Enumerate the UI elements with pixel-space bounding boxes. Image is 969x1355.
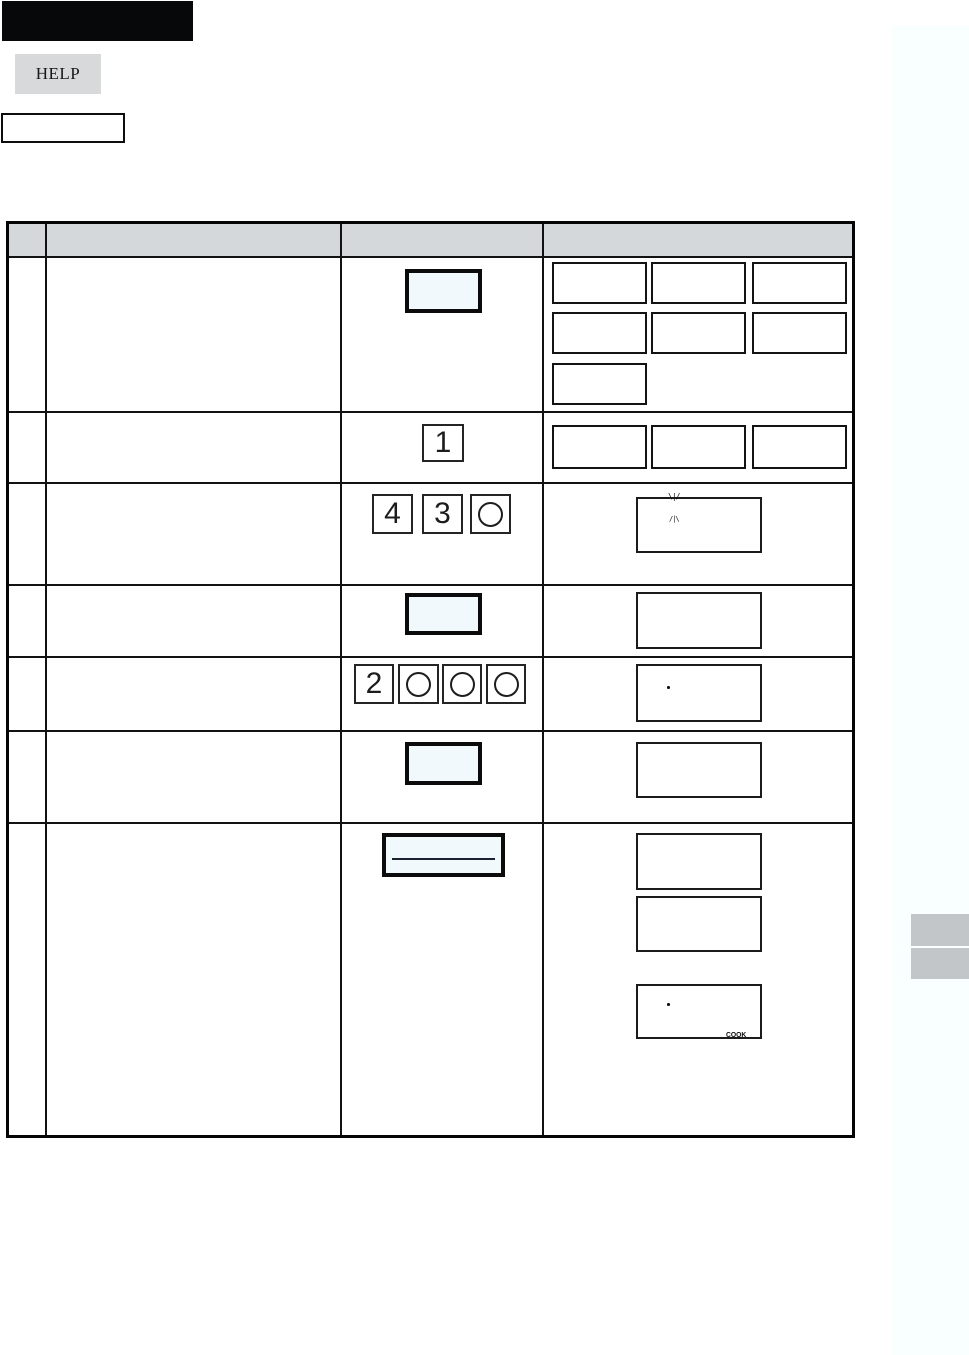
digit-key-label: 2 <box>366 667 383 701</box>
circle-glyph <box>478 502 503 527</box>
step-keys-cell <box>342 732 544 824</box>
header-step-cell <box>9 224 47 258</box>
step-number-cell <box>9 484 47 586</box>
option-slot-box <box>651 262 746 304</box>
option-slot-box <box>651 312 746 354</box>
digit-key-label: 1 <box>435 426 452 460</box>
circle-glyph <box>450 672 475 697</box>
help-key-button[interactable]: HELP <box>15 54 101 94</box>
bar-key-line <box>392 858 495 860</box>
step-description-cell <box>47 258 342 413</box>
step-number-cell <box>9 586 47 658</box>
manual-page: HELP 1 <box>0 0 969 1355</box>
option-slot-box <box>552 363 647 405</box>
blank-pad-key[interactable] <box>405 593 482 635</box>
step-keys-cell: 2 <box>342 658 544 732</box>
step-description-cell <box>47 824 342 1135</box>
digit-key-1[interactable]: 1 <box>422 424 464 462</box>
step-description-cell <box>47 413 342 484</box>
step-display-cell: COOK <box>544 824 852 1135</box>
section-title-banner <box>2 1 193 41</box>
sparkle-top-icon: \|/ <box>668 493 679 501</box>
option-slot-box <box>752 425 847 469</box>
step-number-cell <box>9 413 47 484</box>
option-slot-box <box>752 262 847 304</box>
option-slot-box <box>752 312 847 354</box>
digit-key-4[interactable]: 4 <box>372 494 413 534</box>
procedure-table: 1 4 3 \|/ /|\ <box>6 221 855 1138</box>
step-display-cell <box>544 413 852 484</box>
header-display-cell <box>544 224 852 258</box>
blank-pad-key[interactable] <box>405 742 482 785</box>
display-readout-box <box>636 742 762 798</box>
header-key-operation-cell <box>342 224 544 258</box>
step-keys-cell <box>342 258 544 413</box>
option-slot-box <box>552 262 647 304</box>
blank-pad-key[interactable] <box>405 269 482 313</box>
step-keys-cell <box>342 824 544 1135</box>
display-readout-box <box>636 896 762 952</box>
circle-key[interactable] <box>486 664 526 704</box>
display-readout-box: \|/ /|\ <box>636 497 762 553</box>
option-slot-box <box>552 312 647 354</box>
step-keys-cell: 1 <box>342 413 544 484</box>
circle-key[interactable] <box>442 664 482 704</box>
step-description-cell <box>47 658 342 732</box>
dot-indicator <box>667 686 670 689</box>
step-number-cell <box>9 658 47 732</box>
step-keys-cell: 4 3 <box>342 484 544 586</box>
dot-indicator <box>667 1003 670 1006</box>
display-readout-box <box>636 833 762 890</box>
step-display-cell <box>544 586 852 658</box>
display-readout-box: COOK <box>636 984 762 1039</box>
option-slot-box <box>651 425 746 469</box>
option-slot-box <box>552 425 647 469</box>
digit-key-3[interactable]: 3 <box>422 494 463 534</box>
step-description-cell <box>47 586 342 658</box>
circle-glyph <box>494 672 519 697</box>
display-readout-box <box>636 592 762 649</box>
step-number-cell <box>9 732 47 824</box>
circle-glyph <box>406 672 431 697</box>
side-index-tab-1 <box>911 914 969 946</box>
step-number-cell <box>9 824 47 1135</box>
cook-indicator-label: COOK <box>726 1030 746 1039</box>
help-key-label: HELP <box>36 64 81 84</box>
step-display-cell: \|/ /|\ <box>544 484 852 586</box>
model-label-box <box>1 113 125 143</box>
step-display-cell <box>544 732 852 824</box>
side-index-tab-2 <box>911 948 969 979</box>
circle-key[interactable] <box>470 494 511 534</box>
start-bar-key[interactable] <box>382 833 505 877</box>
sparkle-bottom-icon: /|\ <box>669 515 679 523</box>
circle-key[interactable] <box>398 664 439 704</box>
header-procedure-cell <box>47 224 342 258</box>
step-keys-cell <box>342 586 544 658</box>
step-description-cell <box>47 732 342 824</box>
step-display-cell <box>544 258 852 413</box>
step-number-cell <box>9 258 47 413</box>
digit-key-label: 4 <box>384 497 401 531</box>
digit-key-2[interactable]: 2 <box>354 664 394 704</box>
display-readout-box <box>636 664 762 722</box>
page-margin-tint <box>892 26 969 1355</box>
digit-key-label: 3 <box>434 497 451 531</box>
step-description-cell <box>47 484 342 586</box>
step-display-cell <box>544 658 852 732</box>
